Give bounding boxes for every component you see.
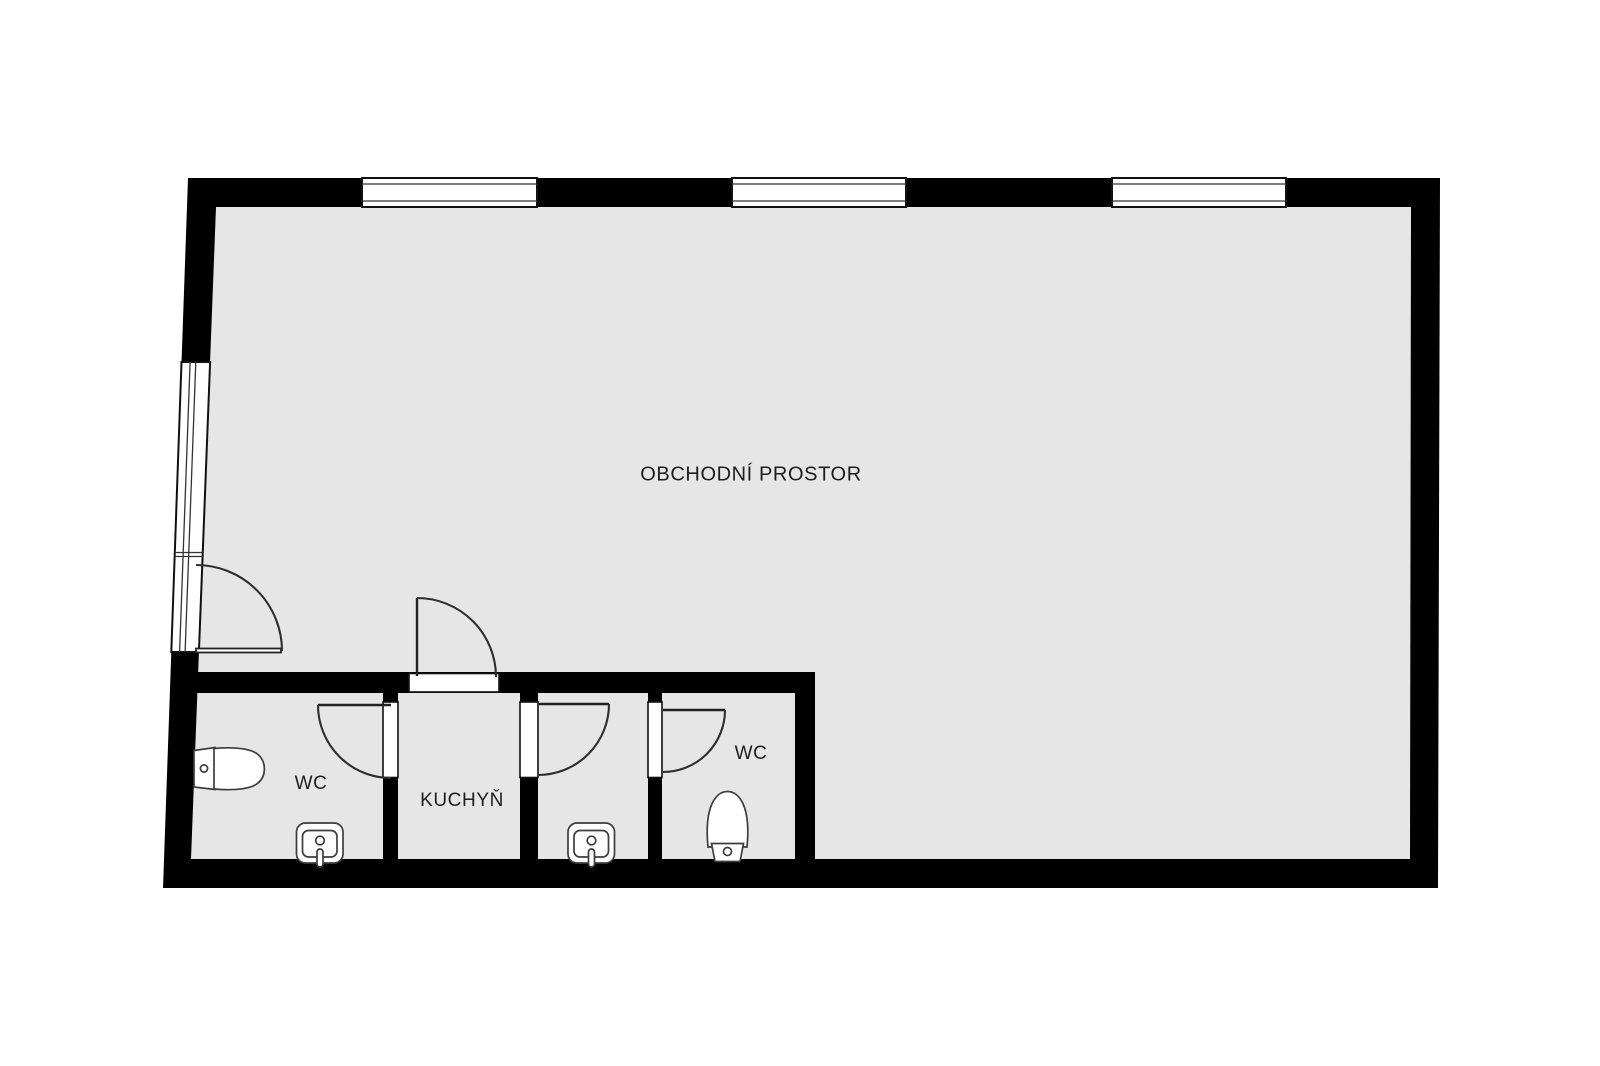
room-label-wc-left: WC	[295, 773, 328, 795]
room-label-obchodni-prostor: OBCHODNÍ PROSTOR	[640, 464, 861, 487]
door-opening	[383, 702, 398, 778]
sink-icon	[297, 823, 344, 867]
window-icon	[732, 178, 906, 207]
toilet-icon	[194, 748, 264, 790]
top-windows	[362, 178, 1286, 207]
floorplan-drawing	[0, 0, 1600, 1066]
toilet-icon	[707, 792, 748, 862]
room-label-wc-right: WC	[735, 743, 768, 765]
door-opening	[648, 702, 662, 778]
door-opening	[409, 674, 499, 693]
strip-right-wall	[795, 674, 815, 859]
door-leaf	[196, 649, 281, 653]
door-opening	[520, 702, 538, 778]
strip-top-wall	[192, 672, 815, 693]
window-icon	[362, 178, 537, 207]
sink-icon	[568, 823, 615, 867]
room-label-kuchyn: KUCHYŇ	[420, 790, 504, 812]
window-icon	[1112, 178, 1286, 207]
floorplan-canvas: OBCHODNÍ PROSTOR WC KUCHYŇ WC	[0, 0, 1600, 1066]
